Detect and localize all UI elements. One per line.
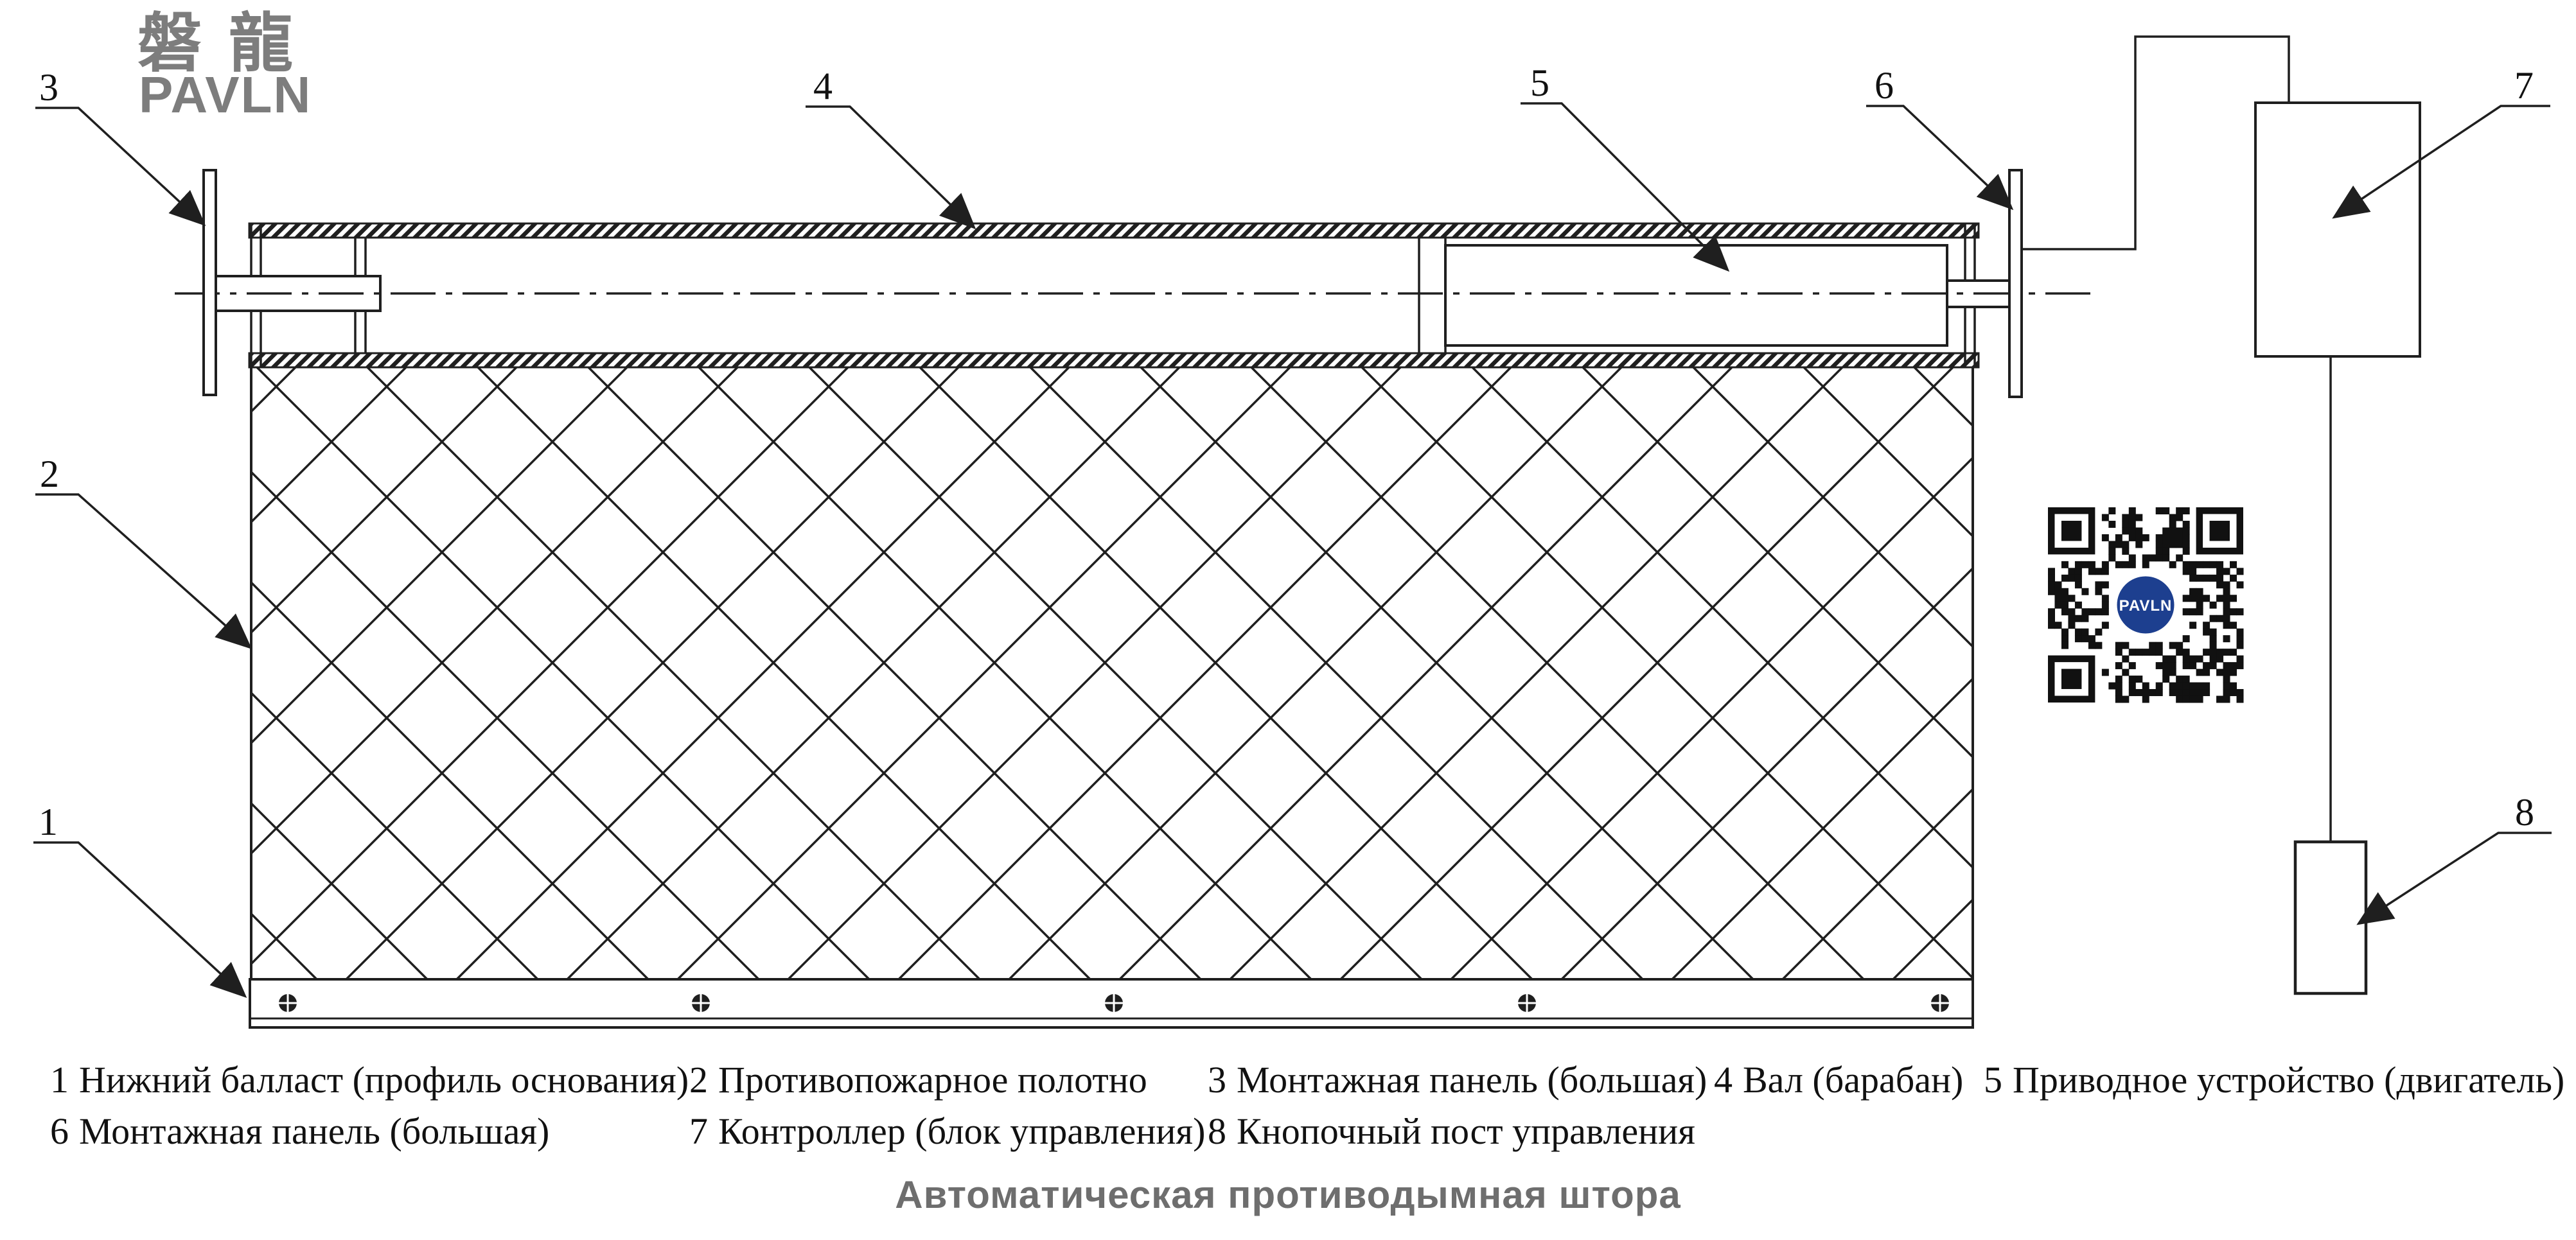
drawing-title: Автоматическая противодымная штора [0, 1173, 2576, 1217]
callout-8-label: 8 [2515, 791, 2534, 834]
callout-5-label: 5 [1530, 62, 1549, 104]
smoke-curtain-drawing: PAVLN 1 2 3 4 5 6 7 8 [0, 0, 2576, 1240]
legend-item-2: 2Противопожарное полотно [689, 1058, 1147, 1101]
fastener-icon [1931, 994, 1949, 1012]
housing-bottom-hatched-band [249, 353, 1979, 367]
roller-housing [216, 223, 2009, 367]
legend-item-2-label: Противопожарное полотно [718, 1059, 1147, 1101]
fastener-icon [1105, 994, 1123, 1012]
legend-item-8-label: Кнопочный пост управления [1237, 1110, 1695, 1152]
legend-item-8: 8Кнопочный пост управления [1208, 1110, 1695, 1153]
legend-item-3: 3Монтажная панель (большая) [1208, 1058, 1707, 1101]
legend-item-5-label: Приводное устройство (двигатель) [2013, 1059, 2564, 1101]
leader-3 [35, 108, 204, 224]
housing-top-hatched-band [249, 223, 1979, 238]
callout-6-label: 6 [1875, 64, 1894, 107]
callout-2-label: 2 [40, 453, 59, 495]
push-button-station [2295, 842, 2366, 993]
legend-item-2-num: 2 [689, 1059, 708, 1101]
legend-item-4-label: Вал (барабан) [1743, 1059, 1963, 1101]
legend-item-3-label: Монтажная панель (большая) [1237, 1059, 1707, 1101]
mounting-panel-left [204, 170, 216, 395]
legend-item-7: 7Контроллер (блок управления) [689, 1110, 1205, 1153]
callout-7-label: 7 [2514, 64, 2534, 107]
legend-item-1-num: 1 [50, 1059, 69, 1101]
legend-item-6: 6Монтажная панель (большая) [50, 1110, 549, 1153]
bottom-ballast [250, 979, 1973, 1027]
legend-item-8-num: 8 [1208, 1110, 1226, 1152]
legend-item-3-num: 3 [1208, 1059, 1226, 1101]
fastener-icon [1518, 994, 1536, 1012]
legend-item-5: 5Приводное устройство (двигатель) [1984, 1058, 2564, 1101]
leader-2 [35, 494, 250, 647]
motor-bracket [1419, 238, 1445, 353]
legend-item-4: 4Вал (барабан) [1714, 1058, 1963, 1101]
legend-item-4-num: 4 [1714, 1059, 1733, 1101]
controller-box [2255, 103, 2420, 356]
callout-1-label: 1 [39, 801, 58, 843]
legend-item-7-num: 7 [689, 1110, 708, 1152]
leader-6 [1866, 106, 2011, 208]
page: 磐龍 PAVLN [0, 0, 2576, 1240]
legend-item-7-label: Контроллер (блок управления) [718, 1110, 1205, 1152]
wire-panel-to-controller [2022, 37, 2289, 249]
callout-3-label: 3 [39, 66, 58, 109]
fire-curtain-mesh [251, 367, 1973, 979]
leader-4 [806, 107, 974, 227]
legend-item-6-label: Монтажная панель (большая) [79, 1110, 549, 1152]
leader-8 [2359, 833, 2552, 923]
leader-1 [33, 843, 245, 996]
mounting-panel-right [2009, 170, 2022, 397]
fastener-icon [692, 994, 710, 1012]
legend-item-5-num: 5 [1984, 1059, 2002, 1101]
fastener-icon [279, 994, 297, 1012]
mesh-fill [251, 367, 1973, 979]
legend-item-6-num: 6 [50, 1110, 69, 1152]
qr-code: PAVLN [2048, 507, 2244, 703]
callout-4-label: 4 [813, 65, 833, 107]
drive-motor-body [1445, 245, 1947, 345]
qr-logo-label: PAVLN [2119, 597, 2173, 615]
legend-item-1: 1Нижний балласт (профиль основания) [50, 1058, 689, 1101]
legend-item-1-label: Нижний балласт (профиль основания) [79, 1059, 689, 1101]
